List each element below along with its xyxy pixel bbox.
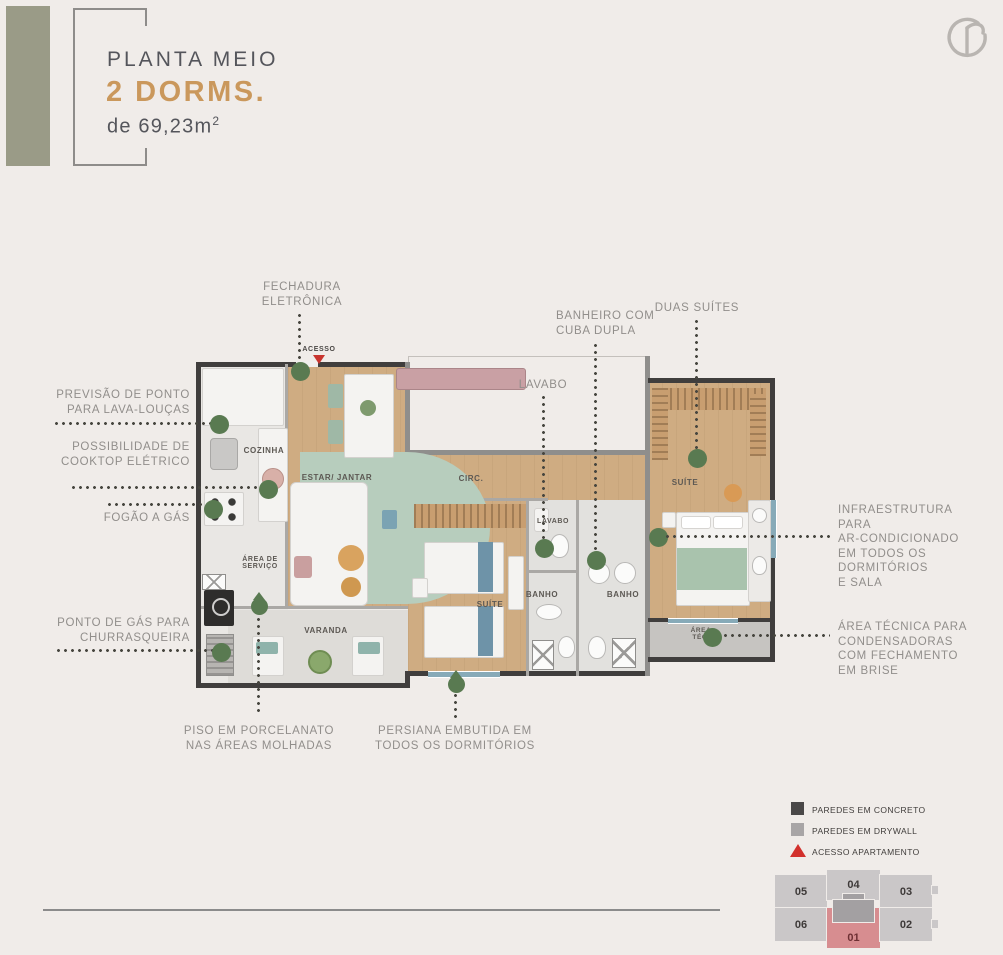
leader-persiana (454, 694, 457, 722)
callout-area-tecnica-line2: CONDENSADORAS (838, 635, 988, 650)
varanda-cushion-2 (358, 642, 380, 654)
callout-fogao: FOGÃO A GÁS (40, 511, 190, 526)
banho2-toilet (588, 636, 606, 659)
marker-fogao (204, 500, 223, 519)
marker-churrasqueira (212, 643, 231, 662)
marker-banheiro (587, 551, 606, 570)
callout-area-tecnica-line3: COM FECHAMENTO (838, 649, 988, 664)
callout-infra: INFRAESTRUTURA PARA AR-CONDICIONADO EM T… (838, 503, 978, 590)
wall-circ-top (405, 450, 650, 455)
callout-infra-line4: EM TODOS OS (838, 547, 978, 562)
side-table-small (341, 577, 361, 597)
room-label-suite1: SUÍTE (460, 600, 520, 609)
bracket-bottom-tick (145, 148, 147, 166)
suite2-closet-left (652, 388, 668, 460)
callout-cooktop: POSSIBILIDADE DE COOKTOP ELÉTRICO (40, 440, 190, 469)
banho2-shower (612, 638, 636, 668)
callout-area-tecnica: ÁREA TÉCNICA PARA CONDENSADORAS COM FECH… (838, 620, 988, 678)
legend-swatch-drywall (791, 823, 804, 836)
accent-chair (382, 510, 397, 529)
suite2-pillow (713, 516, 743, 529)
area-value: de 69,23m (107, 116, 212, 138)
banho1-shower (532, 640, 554, 670)
banho1-sink (536, 604, 562, 620)
callout-fogao-line1: FOGÃO A GÁS (40, 511, 190, 526)
room-label-lavabo: LAVABO (530, 518, 576, 525)
leader-lavabo (542, 396, 545, 540)
keyplan-unit-06: 06 (775, 908, 827, 941)
room-label-cozinha: COZINHA (236, 446, 292, 455)
callout-previsao-line2: PARA LAVA-LOUÇAS (40, 403, 190, 418)
marker-lavabo (535, 539, 554, 558)
callout-cooktop-line2: COOKTOP ELÉTRICO (40, 455, 190, 470)
legend-label-drywall: PAREDES EM DRYWALL (812, 826, 917, 836)
callout-duas-suites: DUAS SUÍTES (637, 301, 757, 316)
dining-table (344, 374, 394, 458)
keyplan: 05 04 03 06 01 02 (765, 868, 945, 952)
callout-fechadura-line2: ELETRÔNICA (232, 295, 372, 310)
room-label-banho1: BANHO (517, 590, 567, 599)
callout-lavabo: LAVABO (493, 378, 593, 393)
callout-piso-line1: PISO EM PORCELANATO (174, 724, 344, 739)
leader-piso (257, 618, 260, 716)
bracket-left-line (73, 8, 75, 166)
marker-persiana (448, 676, 465, 693)
banho2-basin-2 (614, 562, 636, 584)
leader-cooktop (72, 486, 262, 489)
callout-previsao: PREVISÃO DE PONTO PARA LAVA-LOUÇAS (40, 388, 190, 417)
floorplan-page: PLANTA MEIO 2 DORMS. de 69,23m2 (0, 0, 1003, 955)
area-servico-line2: SERVIÇO (232, 563, 288, 570)
area-servico-line1: ÁREA DE (232, 556, 288, 563)
keyplan-unit-05: 05 (775, 875, 827, 908)
keyplan-core-main (833, 900, 874, 922)
suite2-bed-blanket (677, 548, 747, 590)
marker-duas-suites (688, 449, 707, 468)
callout-infra-line3: AR-CONDICIONADO (838, 532, 978, 547)
suite1-nightstand (412, 578, 428, 598)
callout-banheiro-line2: CUBA DUPLA (556, 324, 676, 339)
marker-cooktop (259, 480, 278, 499)
washing-machine-door (212, 598, 230, 616)
callout-previsao-line1: PREVISÃO DE PONTO (40, 388, 190, 403)
keyplan-unit-02: 02 (880, 908, 932, 941)
callout-fechadura: FECHADURA ELETRÔNICA (232, 280, 372, 309)
leader-banheiro (594, 344, 597, 550)
room-label-circ: CIRC. (448, 474, 494, 483)
acesso-label: ACESSO (296, 346, 342, 353)
area-text: de 69,23m2 (107, 114, 220, 139)
side-table (338, 545, 364, 571)
bracket-bottom-line (73, 164, 147, 166)
wall-lavabo-banho1 (528, 570, 578, 573)
bracket-top-tick (145, 8, 147, 26)
wall-notch-right (645, 356, 650, 455)
room-label-estar-jantar: ESTAR/ JANTAR (300, 473, 374, 482)
kitchen-sink (210, 438, 238, 470)
legend-swatch-concrete (791, 802, 804, 815)
callout-churrasqueira-line2: CHURRASQUEIRA (35, 631, 190, 646)
dining-chair (328, 384, 343, 408)
callout-piso-line2: NAS ÁREAS MOLHADAS (174, 739, 344, 754)
leader-duas-suites (695, 320, 698, 450)
suite2-pillow (681, 516, 711, 529)
callout-piso: PISO EM PORCELANATO NAS ÁREAS MOLHADAS (174, 724, 344, 753)
room-label-banho2: BANHO (598, 590, 648, 599)
callout-lavabo-line1: LAVABO (493, 378, 593, 393)
leader-churrasqueira (57, 649, 217, 652)
keyplan-notch (769, 886, 775, 894)
keyplan-tab (932, 920, 938, 928)
marker-area-tecnica (703, 628, 722, 647)
window-suite2 (668, 618, 738, 624)
dining-chair (328, 420, 343, 444)
suite1-bed2-throw (478, 606, 493, 656)
table-plant (360, 400, 376, 416)
leader-previsao (55, 422, 215, 425)
leader-fogao (108, 503, 208, 506)
marker-previsao (210, 415, 229, 434)
area-sup: 2 (212, 114, 220, 128)
room-label-area-servico: ÁREA DE SERVIÇO (232, 556, 288, 570)
legend-label-acesso: ACESSO APARTAMENTO (812, 847, 920, 857)
callout-infra-line5: DORMITÓRIOS (838, 561, 978, 576)
callout-persiana-line1: PERSIANA EMBUTIDA EM (370, 724, 540, 739)
callout-fechadura-line1: FECHADURA (232, 280, 372, 295)
suite2-closet-right (750, 394, 766, 456)
keyplan-notch (769, 920, 775, 928)
duct-shaft (202, 574, 226, 590)
keyplan-tab (932, 886, 938, 894)
window-suite1 (428, 671, 500, 678)
window-suite2-side (770, 500, 777, 558)
keyplan-unit-03: 03 (880, 875, 932, 908)
marker-infra (649, 528, 668, 547)
callout-area-tecnica-line4: EM BRISE (838, 664, 988, 679)
page-subtitle: 2 DORMS. (106, 76, 266, 109)
wall-left (196, 362, 201, 688)
wall-suite2-left (645, 455, 650, 676)
varanda-plant (308, 650, 332, 674)
room-label-varanda: VARANDA (286, 626, 366, 635)
suite1-bed1-throw (478, 542, 493, 592)
wall-suite2-top (648, 378, 775, 383)
footer-divider (43, 909, 720, 911)
leader-fechadura (298, 314, 301, 364)
callout-churrasqueira: PONTO DE GÁS PARA CHURRASQUEIRA (35, 616, 190, 645)
banho1-toilet (558, 636, 575, 658)
wall-banho2-left (576, 500, 579, 676)
wall-bottom-left (196, 683, 410, 688)
wall-bottom-right (648, 657, 775, 662)
callout-duas-suites-line1: DUAS SUÍTES (637, 301, 757, 316)
wall-top-right (318, 362, 410, 367)
bracket-top-line (73, 8, 147, 10)
callout-persiana-line2: TODOS OS DORMITÓRIOS (370, 739, 540, 754)
olive-accent-bar (6, 6, 50, 166)
callout-persiana: PERSIANA EMBUTIDA EM TODOS OS DORMITÓRIO… (370, 724, 540, 753)
wall-lavabo-left (526, 500, 529, 676)
callout-infra-line1: INFRAESTRUTURA (838, 503, 978, 518)
callout-churrasqueira-line1: PONTO DE GÁS PARA (35, 616, 190, 631)
marker-piso (251, 598, 268, 615)
acesso-entry-triangle (313, 355, 325, 364)
callout-infra-line2: PARA (838, 518, 978, 533)
page-title: PLANTA MEIO (107, 48, 278, 72)
ensuite-toilet (752, 556, 767, 575)
sofa-pillow (294, 556, 312, 578)
leader-area-tecnica (724, 634, 830, 637)
suite2-chair (724, 484, 742, 502)
legend-label-concrete: PAREDES EM CONCRETO (812, 805, 926, 815)
callout-cooktop-line1: POSSIBILIDADE DE (40, 440, 190, 455)
legend-red-triangle-icon (790, 844, 806, 857)
callout-area-tecnica-line1: ÁREA TÉCNICA PARA (838, 620, 988, 635)
brand-monogram-icon (940, 12, 994, 66)
suite2-nightstand (662, 512, 676, 528)
suite1-wardrobe (414, 504, 526, 528)
leader-infra (666, 535, 832, 538)
room-label-suite2: SUÍTE (655, 478, 715, 487)
wall-step (405, 671, 410, 688)
ensuite-sink (752, 508, 767, 523)
callout-infra-line6: E SALA (838, 576, 978, 591)
marker-fechadura (291, 362, 310, 381)
